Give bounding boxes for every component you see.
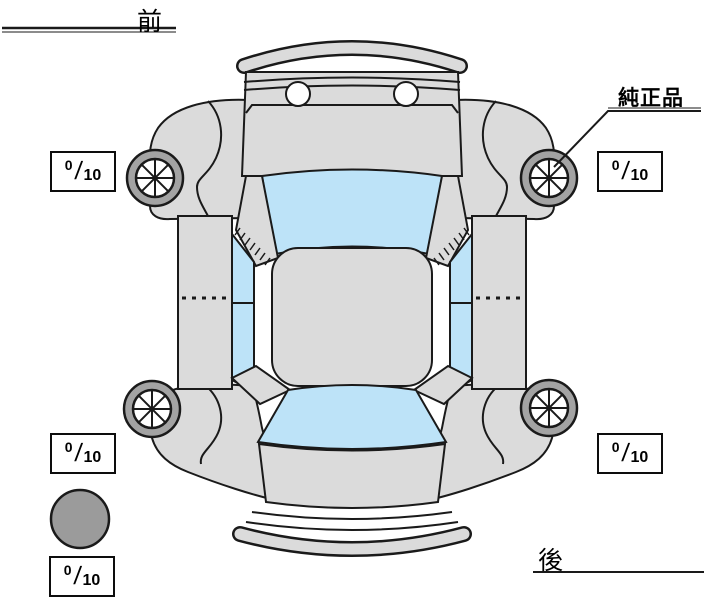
wheel-front-right bbox=[521, 150, 577, 206]
vehicle-inspection-diagram: 前 後 純正品 0/10 0/10 0/10 0/10 0/10 bbox=[0, 0, 711, 600]
rear-bumper-strip-line-1 bbox=[252, 512, 452, 519]
right-headlight bbox=[394, 82, 418, 106]
tread-separator: / bbox=[73, 441, 83, 466]
left-headlight bbox=[286, 82, 310, 106]
genuine-part-label: 純正品 bbox=[618, 82, 684, 112]
tread-depth-box-spare: 0/10 bbox=[49, 556, 115, 597]
tread-separator: / bbox=[73, 159, 83, 184]
tread-max: 10 bbox=[630, 167, 648, 185]
trunk bbox=[259, 444, 445, 508]
wheel-front-left bbox=[127, 150, 183, 206]
rear-label: 後 bbox=[538, 541, 563, 577]
left-door-panel bbox=[178, 216, 232, 389]
rear-bumper-strip-line-2 bbox=[246, 522, 458, 530]
right-door-panel bbox=[472, 216, 526, 389]
tread-max: 10 bbox=[83, 449, 101, 467]
car-top-view bbox=[0, 0, 711, 600]
tread-depth-box-front-left: 0/10 bbox=[50, 151, 116, 192]
roof bbox=[272, 248, 432, 386]
tread-max: 10 bbox=[83, 167, 101, 185]
wheel-rear-left bbox=[124, 381, 180, 437]
tread-depth-box-rear-left: 0/10 bbox=[50, 433, 116, 474]
tread-value: 0 bbox=[64, 562, 72, 578]
tread-depth-box-rear-right: 0/10 bbox=[597, 433, 663, 474]
rear-window bbox=[258, 385, 446, 449]
front-label: 前 bbox=[137, 2, 162, 38]
tread-separator: / bbox=[72, 564, 82, 589]
wheel-rear-right bbox=[521, 380, 577, 436]
tread-depth-box-front-right: 0/10 bbox=[597, 151, 663, 192]
tread-separator: / bbox=[620, 441, 630, 466]
tread-max: 10 bbox=[82, 572, 100, 590]
spare-tire bbox=[51, 490, 109, 548]
tread-max: 10 bbox=[630, 449, 648, 467]
tread-separator: / bbox=[620, 159, 630, 184]
tread-value: 0 bbox=[65, 157, 73, 173]
tread-value: 0 bbox=[65, 439, 73, 455]
tread-value: 0 bbox=[612, 157, 620, 173]
windshield bbox=[262, 170, 442, 255]
tread-value: 0 bbox=[612, 439, 620, 455]
